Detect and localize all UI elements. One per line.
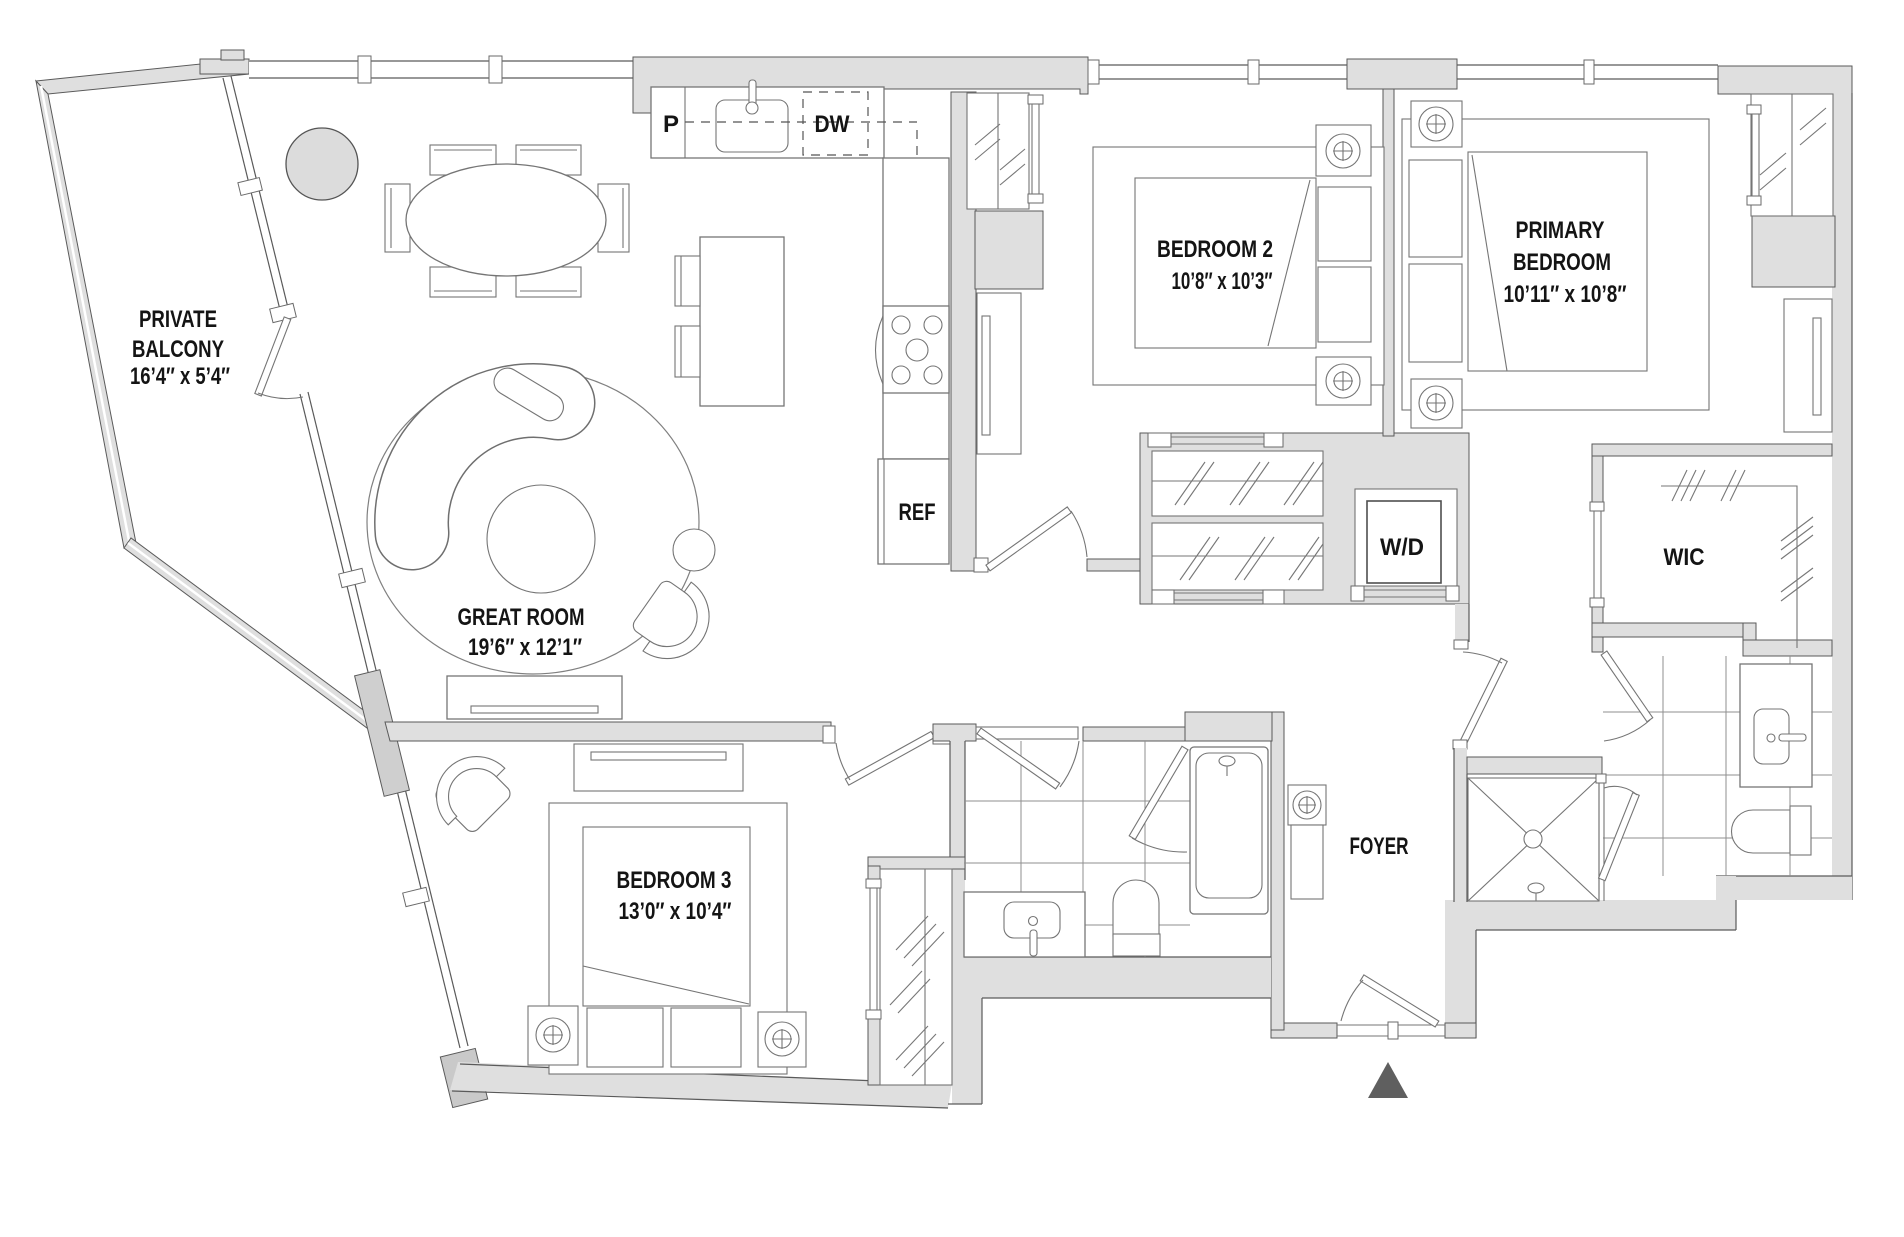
svg-text:GREAT ROOM: GREAT ROOM bbox=[458, 604, 585, 631]
svg-text:P: P bbox=[663, 111, 679, 138]
svg-text:13’0″ x 10’4″: 13’0″ x 10’4″ bbox=[619, 898, 732, 925]
svg-text:16’4″ x 5’4″: 16’4″ x 5’4″ bbox=[130, 363, 230, 390]
svg-text:W/D: W/D bbox=[1380, 534, 1424, 561]
svg-text:BEDROOM 2: BEDROOM 2 bbox=[1157, 236, 1273, 263]
svg-text:WIC: WIC bbox=[1664, 544, 1705, 571]
svg-text:BEDROOM 3: BEDROOM 3 bbox=[617, 867, 732, 894]
svg-text:BEDROOM: BEDROOM bbox=[1513, 249, 1611, 276]
svg-text:REF: REF bbox=[899, 499, 936, 526]
svg-text:BALCONY: BALCONY bbox=[132, 336, 224, 363]
svg-text:10’8″ x 10’3″: 10’8″ x 10’3″ bbox=[1172, 268, 1273, 295]
svg-text:PRIMARY: PRIMARY bbox=[1516, 217, 1605, 244]
svg-text:10’11″ x 10’8″: 10’11″ x 10’8″ bbox=[1504, 281, 1627, 308]
svg-text:DW: DW bbox=[815, 111, 850, 138]
svg-text:PRIVATE: PRIVATE bbox=[139, 306, 217, 333]
svg-text:19’6″ x 12’1″: 19’6″ x 12’1″ bbox=[468, 634, 582, 661]
svg-text:FOYER: FOYER bbox=[1350, 833, 1409, 860]
